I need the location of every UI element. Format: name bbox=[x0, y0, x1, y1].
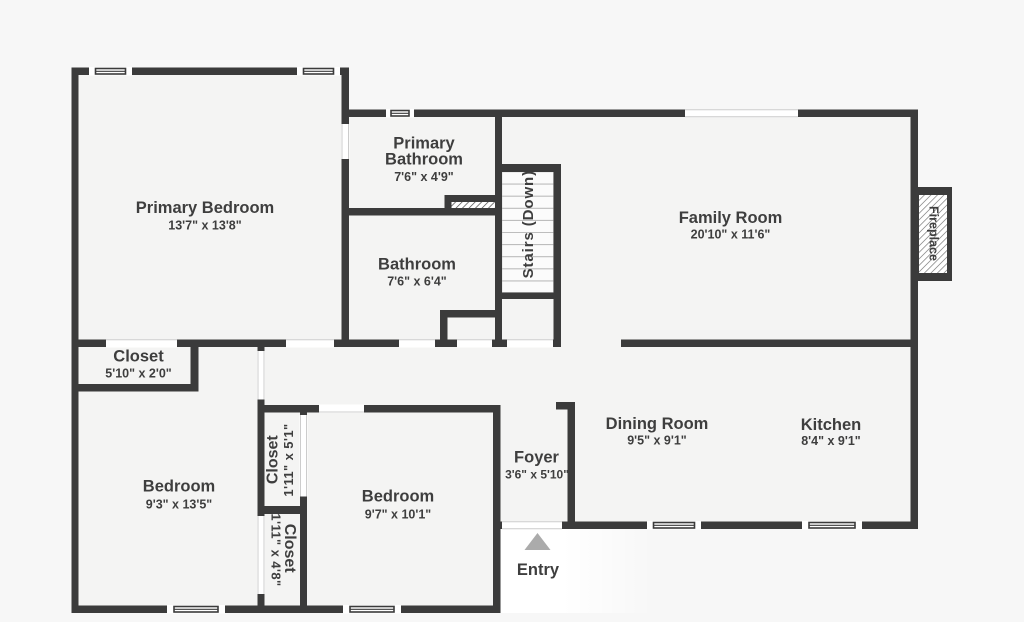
svg-text:Foyer: Foyer bbox=[514, 449, 560, 467]
svg-text:Entry: Entry bbox=[517, 561, 560, 579]
svg-text:7'6" x 4'9": 7'6" x 4'9" bbox=[394, 170, 454, 184]
svg-text:8'4" x 9'1": 8'4" x 9'1" bbox=[801, 434, 861, 448]
svg-text:Fireplace: Fireplace bbox=[927, 206, 941, 261]
svg-text:9'7" x 10'1": 9'7" x 10'1" bbox=[365, 508, 432, 522]
svg-text:Dining Room: Dining Room bbox=[606, 415, 709, 433]
svg-text:13'7" x 13'8": 13'7" x 13'8" bbox=[168, 219, 241, 233]
svg-text:1'11" x 4'8": 1'11" x 4'8" bbox=[269, 513, 284, 586]
svg-text:Closet: Closet bbox=[264, 435, 281, 485]
svg-text:Stairs (Down): Stairs (Down) bbox=[520, 170, 537, 278]
svg-text:9'3" x 13'5": 9'3" x 13'5" bbox=[146, 498, 213, 512]
svg-text:1'11" x 5'1": 1'11" x 5'1" bbox=[281, 423, 296, 496]
svg-text:Bedroom: Bedroom bbox=[143, 478, 215, 496]
svg-text:Closet: Closet bbox=[113, 348, 164, 366]
svg-text:Primary Bedroom: Primary Bedroom bbox=[136, 199, 274, 217]
svg-text:Bathroom: Bathroom bbox=[378, 256, 456, 274]
svg-text:Kitchen: Kitchen bbox=[801, 416, 862, 434]
svg-text:3'6" x 5'10": 3'6" x 5'10" bbox=[505, 468, 569, 482]
svg-text:7'6" x 6'4": 7'6" x 6'4" bbox=[387, 275, 447, 289]
svg-text:Family Room: Family Room bbox=[679, 209, 783, 227]
svg-text:Bathroom: Bathroom bbox=[385, 151, 463, 169]
svg-text:9'5" x 9'1": 9'5" x 9'1" bbox=[627, 434, 687, 448]
svg-text:20'10" x 11'6": 20'10" x 11'6" bbox=[691, 228, 771, 242]
svg-text:Bedroom: Bedroom bbox=[362, 488, 434, 506]
svg-text:5'10" x 2'0": 5'10" x 2'0" bbox=[105, 367, 172, 381]
